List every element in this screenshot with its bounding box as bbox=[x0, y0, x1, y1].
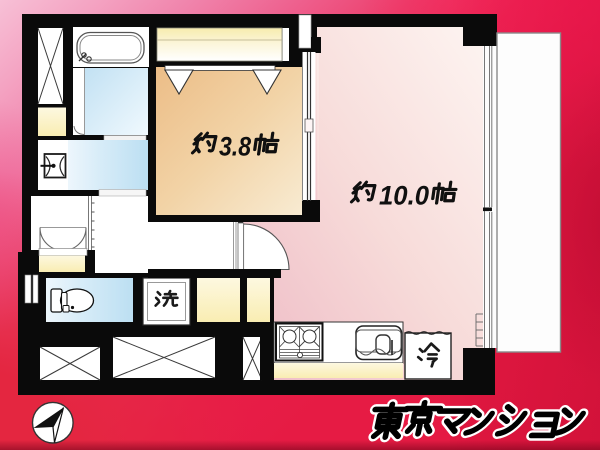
svg-text:10.0: 10.0 bbox=[379, 181, 429, 211]
svg-text:3.8: 3.8 bbox=[219, 132, 251, 162]
